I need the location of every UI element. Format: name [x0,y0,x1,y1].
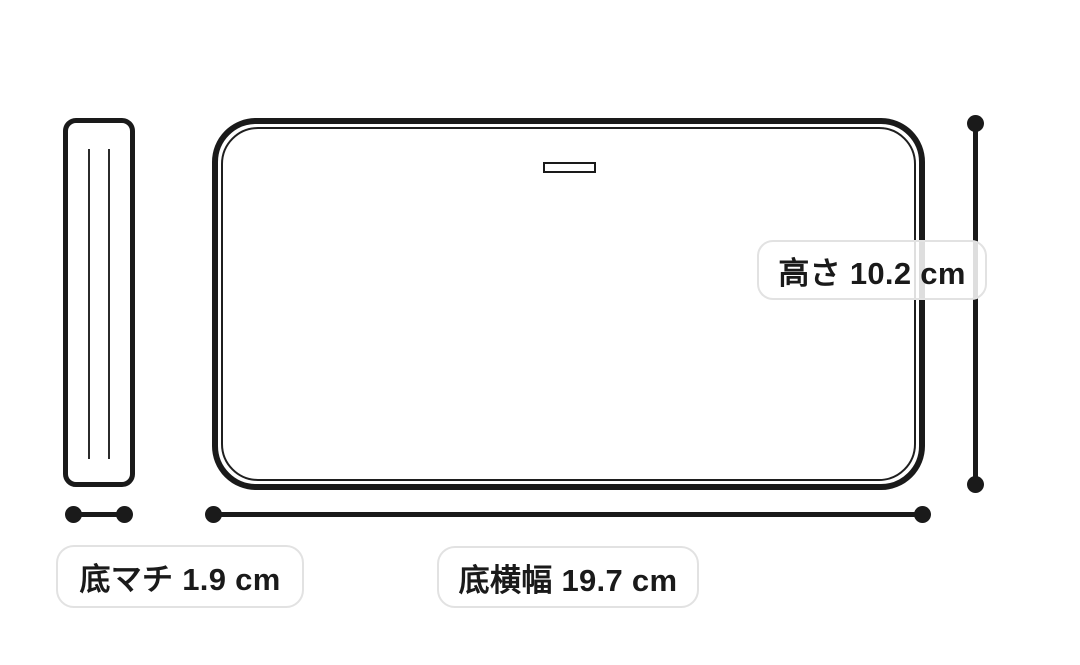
bottom-width-dimension-end-dot [914,506,931,523]
height-measurement-label: 高さ 10.2 cm [757,240,987,300]
bottom-width-dimension-end-dot [205,506,222,523]
height-dimension-line [973,124,978,485]
clasp-slot [543,162,596,173]
bottom-gusset-dimension-end-dot [116,506,133,523]
side-view-seam-line [108,149,110,459]
front-view-inner-stitch-line [221,127,916,481]
height-dimension-end-dot [967,115,984,132]
bottom-gusset-measurement-label: 底マチ 1.9 cm [56,545,304,608]
bottom-gusset-dimension-end-dot [65,506,82,523]
height-dimension-end-dot [967,476,984,493]
dimension-diagram: 高さ 10.2 cm 底横幅 19.7 cm 底マチ 1.9 cm [0,0,1080,665]
front-view-outline [212,118,925,490]
side-view-outline [63,118,135,487]
side-view-seam-line [88,149,90,459]
bottom-width-measurement-label: 底横幅 19.7 cm [437,546,699,608]
bottom-width-dimension-line [213,512,923,517]
